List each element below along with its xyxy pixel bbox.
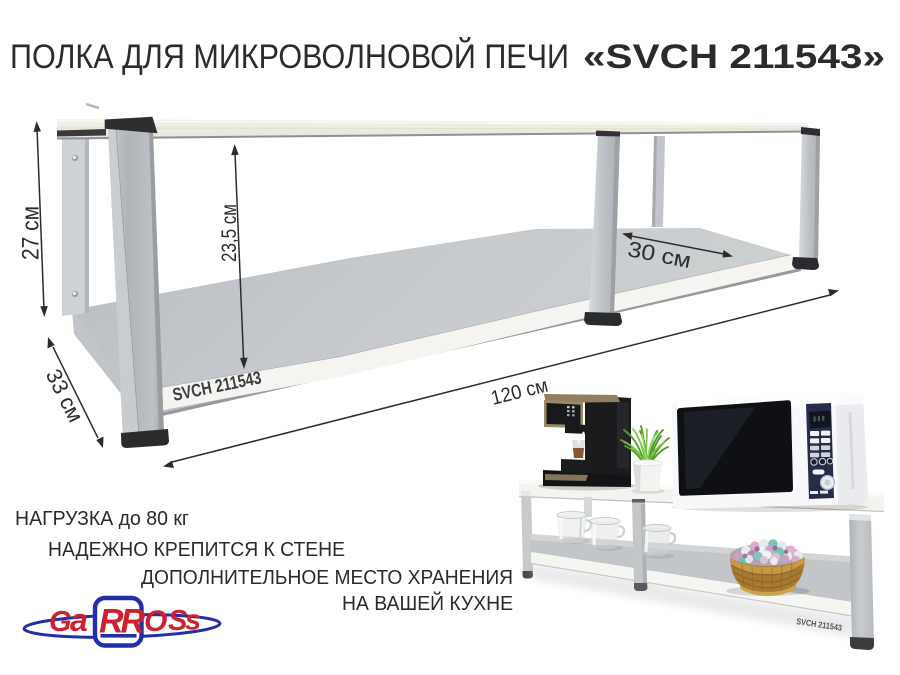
svg-text:s: s <box>185 605 201 637</box>
svg-text:«SVCH 211543»: «SVCH 211543» <box>583 38 885 76</box>
svg-text:O: O <box>144 605 167 638</box>
svg-text:a: a <box>70 602 88 638</box>
svg-text:RR: RR <box>99 603 146 641</box>
svg-text:ПОЛКА ДЛЯ МИКРОВОЛНОВОЙ ПЕЧИ: ПОЛКА ДЛЯ МИКРОВОЛНОВОЙ ПЕЧИ <box>10 36 569 76</box>
svg-text:НАГРУЗКА до 80 кг: НАГРУЗКА до 80 кг <box>15 507 189 530</box>
svg-text:НАДЕЖНО КРЕПИТСЯ К СТЕНЕ: НАДЕЖНО КРЕПИТСЯ К СТЕНЕ <box>48 538 345 561</box>
svg-text:G: G <box>49 606 72 638</box>
svg-text:ДОПОЛНИТЕЛЬНОЕ МЕСТО ХРАНЕНИЯ: ДОПОЛНИТЕЛЬНОЕ МЕСТО ХРАНЕНИЯ <box>141 566 513 589</box>
svg-text:27 см: 27 см <box>18 206 45 260</box>
svg-text:23,5 см: 23,5 см <box>218 204 241 262</box>
svg-text:НА ВАШЕЙ КУХНЕ: НА ВАШЕЙ КУХНЕ <box>342 591 513 615</box>
